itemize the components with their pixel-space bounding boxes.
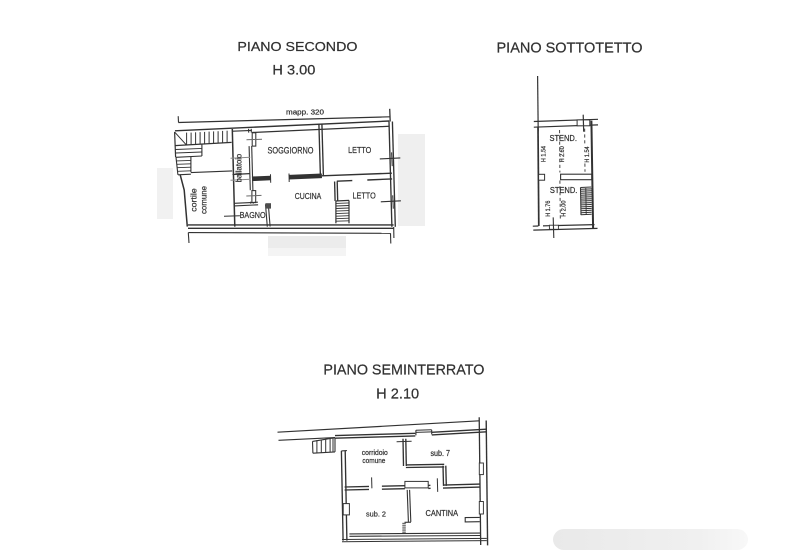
svg-text:H 1.76: H 1.76 xyxy=(546,200,552,217)
svg-text:CANTINA: CANTINA xyxy=(426,508,459,518)
svg-text:comune: comune xyxy=(198,186,208,214)
svg-text:sub. 7: sub. 7 xyxy=(430,449,450,458)
svg-text:SOGGIORNO: SOGGIORNO xyxy=(268,146,314,156)
svg-text:H 3.00: H 3.00 xyxy=(272,63,315,78)
svg-text:CUCINA: CUCINA xyxy=(295,192,322,201)
svg-text:comune: comune xyxy=(362,456,385,465)
svg-text:LETTO: LETTO xyxy=(348,145,371,155)
svg-text:ballatoio: ballatoio xyxy=(233,153,243,182)
svg-text:PIANO SEMINTERRATO: PIANO SEMINTERRATO xyxy=(323,362,484,378)
svg-text:H 1.54: H 1.54 xyxy=(585,146,591,163)
svg-text:STEND.: STEND. xyxy=(549,134,577,143)
svg-text:H 1.54: H 1.54 xyxy=(542,145,548,162)
svg-text:BAGNO: BAGNO xyxy=(240,210,266,220)
svg-text:STEND.: STEND. xyxy=(550,186,578,195)
svg-text:H 2.00: H 2.00 xyxy=(562,200,568,217)
svg-text:H 2.60: H 2.60 xyxy=(560,146,566,163)
svg-text:sub. 2: sub. 2 xyxy=(366,509,386,518)
svg-text:cortile: cortile xyxy=(189,188,199,212)
svg-text:LETTO: LETTO xyxy=(353,191,376,201)
svg-text:mapp. 320: mapp. 320 xyxy=(286,108,324,117)
svg-text:H 2.10: H 2.10 xyxy=(376,386,419,402)
svg-text:PIANO SECONDO: PIANO SECONDO xyxy=(237,39,357,54)
svg-text:PIANO SOTTOTETTO: PIANO SOTTOTETTO xyxy=(497,41,643,57)
